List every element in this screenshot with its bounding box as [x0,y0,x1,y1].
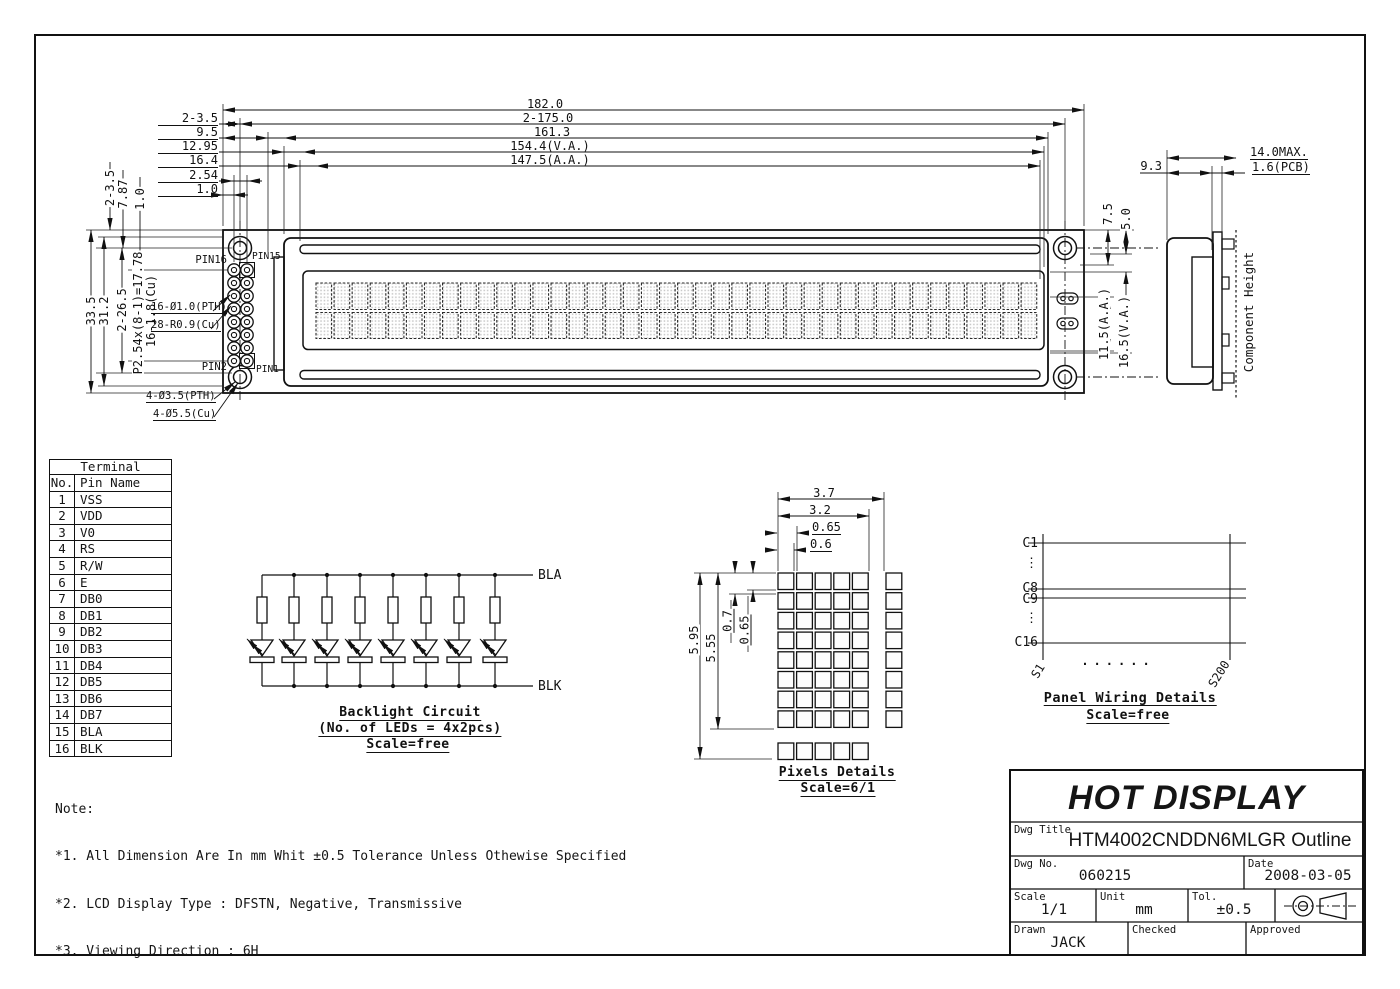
dim-bezel-width: 161.3 [534,126,570,139]
pin16-label: PIN16 [195,255,227,266]
dim-edge-12-95: 12.95 [158,140,218,154]
notes-block: Note: *1. All Dimension Are In mm Whit ±… [55,770,626,989]
checked-label: Checked [1132,925,1176,936]
callout-copper-pads: 28-R0.9(Cu) [151,320,221,332]
dwg-no-value: 060215 [1040,869,1170,885]
dwg-title-value: HTM4002CNDDN6MLGR Outline [1060,829,1360,853]
table-row: 16BLK [50,741,171,757]
dim-right-7-5: 7.5 [1102,202,1114,226]
dim-overall-width: 182.0 [527,98,563,111]
drawn-value: JACK [1018,936,1118,952]
table-row: 8DB1 [50,608,171,625]
dim-active-area-height: 11.5(A.A.) [1098,287,1110,361]
approved-label: Approved [1250,925,1301,936]
dim-v-edge-hole: 2-3.5 [104,169,116,207]
panel-wiring-caption: Panel Wiring Details [1044,691,1217,706]
table-row: 12DB5 [50,674,171,691]
dim-depth-9-3: 9.3 [1132,160,1162,173]
panel-wiring-scale: Scale=free [1086,709,1169,724]
table-row: 9DB2 [50,624,171,641]
dim-pcb-thickness: 1.6(PCB) [1252,161,1310,175]
pin1-label: PIN1 [256,365,279,375]
terminal-col-no: No. [50,475,75,491]
table-row: 14DB7 [50,707,171,724]
dwg-no-label: Dwg No. [1014,859,1058,870]
dim-pixel-3-2: 3.2 [809,504,831,517]
company-logo: HOT DISPLAY [1012,776,1361,820]
table-row: 1VSS [50,492,171,509]
table-row: 2VDD [50,508,171,525]
dim-v-1-0: 1.0 [134,187,146,211]
dim-depth-max: 14.0MAX. [1250,146,1308,160]
callout-mount-copper: 4-Ø5.5(Cu) [153,409,216,421]
pin15-label: PIN15 [252,252,281,262]
tol-value: ±0.5 [1198,903,1270,919]
dim-viewing-area-height: 16.5(V.A.) [1118,295,1130,369]
table-row: 10DB3 [50,641,171,658]
terminal-table-title: Terminal [50,460,171,475]
backlight-cathode-label: BLK [538,680,561,694]
dim-hole-v-spacing: 2-26.5 [116,287,128,332]
tol-label: Tol. [1192,892,1217,903]
note-line: *3. Viewing Direction : 6H [55,944,626,960]
scale-label: Scale [1014,892,1046,903]
dim-pixel-0-6: 0.6 [810,538,832,552]
pixels-caption: Pixels Details [779,766,896,781]
callout-pth-holes: 16-Ø1.0(PTH) [151,302,227,314]
dim-height-31-2: 31.2 [98,296,110,327]
wiring-c1: C1 [996,537,1038,551]
dim-pixel-0-65v: 0.65 [739,615,752,646]
table-row: 5R/W [50,558,171,575]
pin2-label: PIN2 [199,362,227,373]
terminal-table: Terminal No.Pin Name 1VSS 2VDD 3V0 4RS 5… [49,459,172,757]
projection-symbol [1284,893,1357,919]
table-row: 3V0 [50,525,171,542]
table-row: 13DB6 [50,691,171,708]
dim-pixel-5-95: 5.95 [688,625,700,656]
scale-value: 1/1 [1018,903,1090,919]
note-line: Note: [55,802,626,818]
dim-edge-16-4: 16.4 [158,154,218,168]
note-line: *2. LCD Display Type : DFSTN, Negative, … [55,897,626,913]
dim-right-5-0: 5.0 [1120,207,1132,231]
backlight-caption: Backlight Circuit [339,706,481,721]
dim-edge-hole: 2-3.5 [158,112,218,126]
dim-pixel-5-55: 5.55 [705,633,717,664]
backlight-scale: Scale=free [366,738,449,753]
backlight-led-count: (No. of LEDs = 4x2pcs) [318,722,501,737]
drawn-label: Drawn [1014,925,1046,936]
dim-pixel-0-65: 0.65 [812,521,841,535]
dim-active-area: 147.5(A.A.) [510,154,589,167]
pixels-scale: Scale=6/1 [801,782,876,797]
wiring-dots-2: ⋮ [996,612,1038,626]
table-row: 15BLA [50,724,171,741]
backlight-anode-label: BLA [538,569,561,583]
dim-pixel-0-7: 0.7 [722,609,735,633]
dim-pin-pitch-formula: P2.54x(8-1)=17.78 [132,251,144,376]
date-value: 2008-03-05 [1258,869,1358,885]
wiring-c16: C16 [996,636,1038,650]
table-row: 4RS [50,541,171,558]
table-row: 7DB0 [50,591,171,608]
note-line: *1. All Dimension Are In mm Whit ±0.5 To… [55,849,626,865]
dim-edge-9-5: 9.5 [158,126,218,140]
unit-label: Unit [1100,892,1125,903]
dim-overall-height: 33.5 [85,296,97,327]
component-height-label: Component Height [1243,251,1256,373]
table-row: 6E [50,575,171,592]
callout-mount-pth: 4-Ø3.5(PTH) [146,391,216,403]
dim-viewing-area: 154.4(V.A.) [510,140,589,153]
dim-hole-spacing: 2-175.0 [523,112,574,125]
table-row: 11DB4 [50,658,171,675]
dim-v-7-87: 7.87 [117,179,129,210]
drawing-sheet: 182.0 2-175.0 161.3 154.4(V.A.) 147.5(A.… [0,0,1400,989]
dim-pin-pitch: 2.54 [158,169,218,183]
wiring-ellipsis: ...... [1081,655,1154,668]
wiring-c9: C9 [996,593,1038,607]
dim-edge-1-0: 1.0 [158,183,218,197]
unit-value: mm [1108,903,1180,919]
dim-pixel-3-7: 3.7 [813,487,835,500]
terminal-col-pin: Pin Name [75,475,171,491]
wiring-dots-1: ⋮ [996,557,1038,571]
